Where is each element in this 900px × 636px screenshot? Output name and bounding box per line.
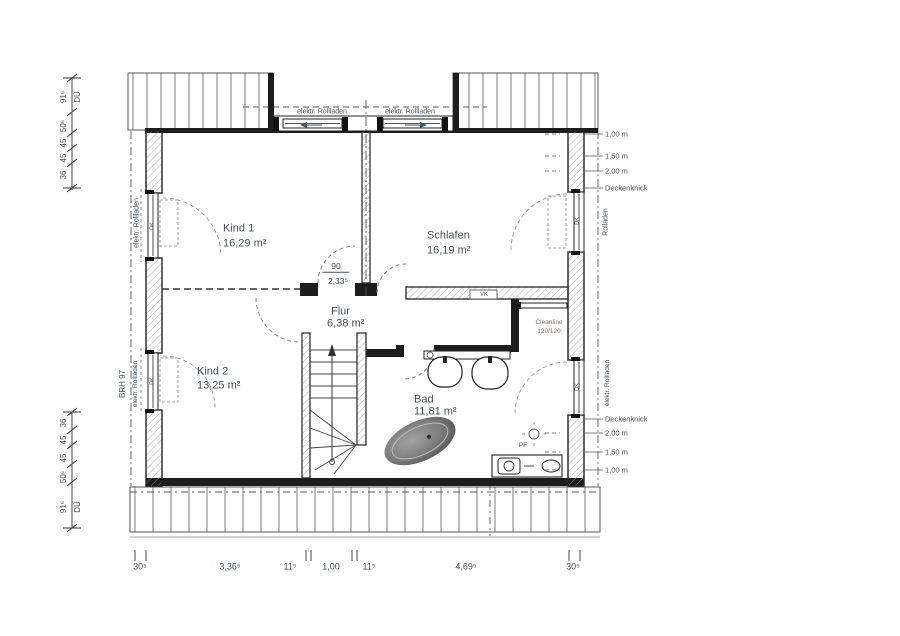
room-area-schlafen: 16,19 m² bbox=[427, 246, 470, 257]
opening-height-label: 2,33⁵ bbox=[328, 277, 348, 286]
window-mark-dk-4: DK bbox=[575, 383, 581, 391]
room-label-kind2: Kind 2 bbox=[197, 367, 228, 378]
dim-left-bottom-du: DÜ bbox=[74, 501, 82, 513]
room-area-kind2: 13,25 m² bbox=[197, 381, 240, 392]
wc-area bbox=[492, 422, 562, 477]
dim-left-bottom-506: 50⁶ bbox=[60, 471, 68, 483]
right-bottom-rollladen-label: elektr. Rollladen bbox=[605, 360, 612, 406]
dim-left-bottom-36: 36 bbox=[60, 419, 68, 428]
room-area-flur: 6,38 m² bbox=[327, 319, 364, 330]
brh-label: BRH 97 bbox=[119, 370, 127, 398]
window-mark-dk-3: DK bbox=[575, 217, 581, 225]
height-mark-bottom-200: 2,00 m bbox=[605, 429, 628, 437]
window-mark-dk-2: DK bbox=[150, 377, 156, 385]
dim-left-bottom-45a: 45 bbox=[60, 436, 68, 445]
opening-width-label: 90 bbox=[322, 262, 349, 273]
room-area-kind1: 16,29 m² bbox=[223, 239, 266, 250]
washbasins bbox=[424, 351, 510, 389]
height-mark-top-200: 2,00 m bbox=[605, 167, 628, 175]
height-mark-top-150: 1,50 m bbox=[605, 152, 628, 160]
dim-bottom-305-right: 30⁵ bbox=[566, 563, 580, 572]
roof-overhang-bottom bbox=[130, 483, 600, 537]
room-label-kind1: Kind 1 bbox=[223, 224, 254, 235]
dim-bottom-4695: 4,69⁵ bbox=[455, 563, 476, 572]
pf-mark: PF bbox=[519, 443, 527, 450]
dim-bottom-115-right: 11⁵ bbox=[362, 563, 375, 572]
window-mark-dk-1: DK bbox=[150, 222, 156, 230]
dim-bottom-3365: 3,36⁵ bbox=[219, 563, 240, 572]
dim-left-top-du: DÜ bbox=[74, 91, 82, 103]
dim-left-bottom-45b: 45 bbox=[60, 454, 68, 463]
left-top-rollladen-label: elektr. Rollladen bbox=[134, 198, 141, 248]
height-mark-bottom-knick: Deckenknick bbox=[605, 415, 648, 423]
floorplan-drawing bbox=[0, 0, 900, 636]
dim-left-top-36: 36 bbox=[60, 171, 68, 180]
floor-plan-sheet: Kind 1 16,29 m² Schlafen 16,19 m² Flur 6… bbox=[0, 0, 900, 636]
dimension-chain-bottom bbox=[135, 550, 580, 561]
dim-left-top-45a: 45 bbox=[60, 139, 68, 148]
dim-bottom-115-left: 11⁵ bbox=[283, 563, 296, 572]
room-label-flur: Flur bbox=[331, 307, 350, 318]
roof-overhang-top-left bbox=[128, 73, 273, 130]
dim-left-top-506: 50⁶ bbox=[60, 120, 68, 132]
room-label-bad: Bad bbox=[414, 395, 434, 406]
dormer-windows bbox=[268, 73, 459, 131]
dim-left-top-45b: 45 bbox=[60, 154, 68, 163]
height-mark-top-100: 1,00 m bbox=[605, 130, 628, 138]
dormer-left-rollladen-label: elektr. Rollladen bbox=[297, 109, 347, 116]
shower-label-line1: Cleanline bbox=[535, 320, 562, 327]
roof-overhang-top-right bbox=[453, 73, 598, 130]
shower-label-line2: 120/120 bbox=[537, 329, 561, 336]
vk-mark: VK bbox=[480, 292, 488, 298]
height-mark-top-knick: Deckenknick bbox=[605, 184, 648, 192]
stairs bbox=[302, 333, 366, 478]
dormer-right-rollladen-label: elektr. Rollladen bbox=[385, 109, 435, 116]
height-mark-bottom-150: 1,50 m bbox=[605, 448, 628, 456]
room-area-bad: 11,81 m² bbox=[414, 407, 457, 418]
height-mark-bottom-100: 1,00 m bbox=[605, 466, 628, 474]
left-bottom-rollladen-label: elektr. Rollladen bbox=[133, 361, 140, 407]
right-top-rolladen-label: Rolladen bbox=[603, 208, 610, 236]
dim-bottom-305-left: 30⁵ bbox=[133, 563, 147, 572]
dim-left-top-916: 91⁶ bbox=[60, 91, 68, 103]
dim-left-bottom-916: 91⁶ bbox=[60, 501, 68, 513]
room-label-schlafen: Schlafen bbox=[427, 231, 470, 242]
dim-bottom-100: 1,00 bbox=[322, 563, 340, 572]
